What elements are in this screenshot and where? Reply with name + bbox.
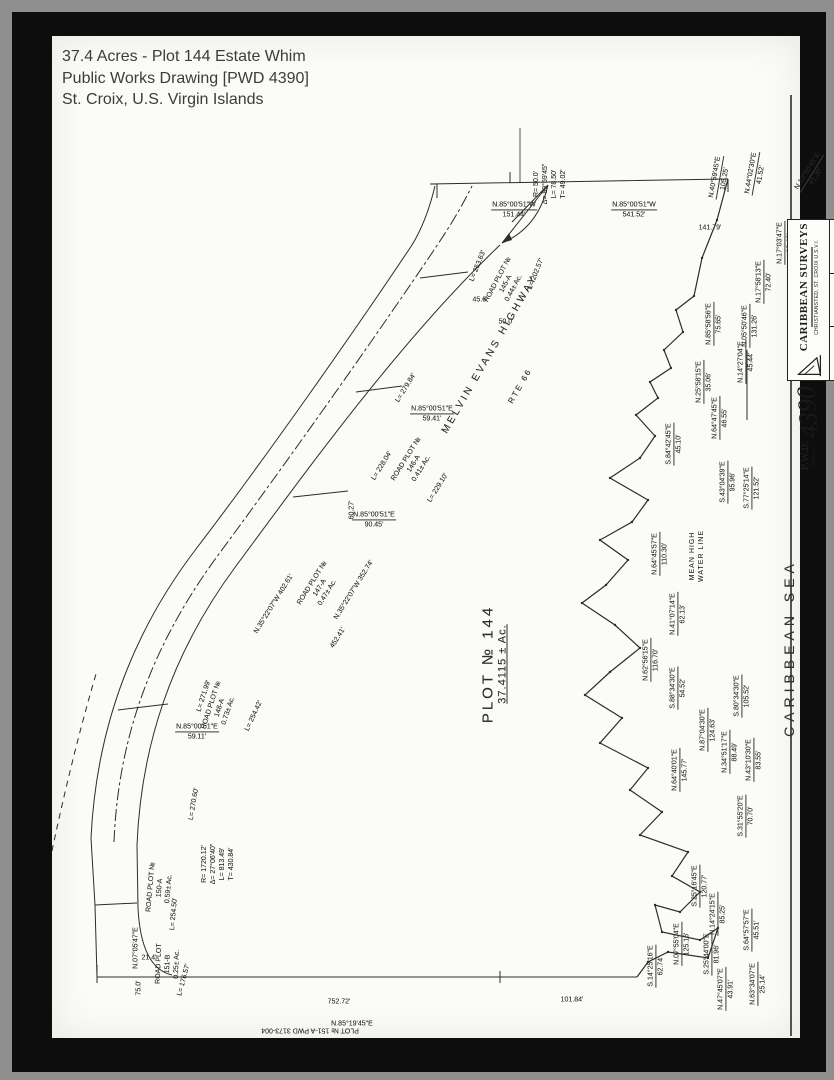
survey-label-line: 83.55' <box>755 750 764 771</box>
survey-label-line: S.25°16'45"E <box>690 864 700 907</box>
survey-label-line: 145.77' <box>681 758 690 783</box>
road-crossing-ties <box>118 272 468 710</box>
survey-label: N.85°00'51"W541.52' <box>611 200 657 219</box>
survey-label-line: N.34°51'17"E <box>720 730 730 774</box>
survey-label: S.84°42'45"E45.10' <box>664 422 683 465</box>
survey-label-line: 59.41' <box>422 415 443 424</box>
field-cell <box>830 220 834 273</box>
survey-label: N.14°27'04"E45.44' <box>736 340 755 384</box>
handwriting-scribble <box>830 220 834 273</box>
firm-subtitle-illegible <box>811 247 813 327</box>
survey-label: PLOT № 151-A PWD 3173-004 <box>260 1025 360 1034</box>
title-block-rotated: CARIBBEAN SURVEYS CHRISTIANSTED, ST. CRO… <box>787 219 834 381</box>
road-inner-edge <box>137 245 500 845</box>
handwriting-scribble <box>830 274 834 327</box>
fillet-arrowhead <box>502 233 512 243</box>
survey-label-line: S.64°57'57"E <box>742 908 752 951</box>
survey-label: 75.0' <box>134 980 143 997</box>
survey-label: S.64°57'57"E45.51' <box>742 908 761 951</box>
survey-label: 101.84' <box>560 995 585 1004</box>
scanned-survey-page: 37.4 Acres - Plot 144 Estate Whim Public… <box>0 0 834 1080</box>
survey-label-line: 62.74' <box>657 956 666 977</box>
survey-label: R= 1720.12'Δ= 27°06'40"L= 813.49'T= 430.… <box>200 843 236 886</box>
survey-label: N.62°56'15"E116.70' <box>641 638 660 682</box>
survey-label-line: N.62°56'15"E <box>641 638 651 682</box>
survey-label-line: 70.70' <box>747 806 756 827</box>
survey-label-line: N.63°34'07"E <box>748 962 758 1006</box>
survey-label-line: 121.52' <box>753 476 762 501</box>
survey-label-line: N.25°58'15"E <box>694 360 704 404</box>
survey-label-line: MEAN HIGH <box>688 531 697 582</box>
survey-label: S.88°34'30"E54.52' <box>668 666 687 709</box>
survey-label-line: 141.79' <box>698 223 723 232</box>
west-boundary-line <box>91 838 137 977</box>
survey-label-line: 54.52' <box>679 678 688 699</box>
survey-label-line: 60.27' <box>347 500 356 521</box>
field-cell <box>830 326 834 380</box>
survey-label-line: PLOT № 151-A PWD 3173-004 <box>260 1025 360 1034</box>
survey-label-line: Δ= 89°59'45" <box>541 163 550 206</box>
survey-label-line: S.43°04'39"E <box>718 460 728 503</box>
survey-label-line: T= 430.84' <box>227 846 236 881</box>
survey-label: S.14°25'16"E62.74' <box>646 944 665 987</box>
survey-label: R= 50.0'Δ= 89°59'45"L= 78.50'T= 49.02' <box>532 163 568 206</box>
survey-label-line: N.64°40'01"E <box>670 748 680 792</box>
survey-label-line: N.64°45'57"E <box>650 532 660 576</box>
survey-label-line: T= 49.02' <box>559 168 568 199</box>
survey-label: S.31°55'20"E70.70' <box>736 794 755 837</box>
pwd-number-rotated: P.W.D. DWG. NO. 4390 <box>784 398 832 470</box>
survey-label: MEAN HIGHWATER LINE <box>688 529 706 583</box>
survey-label: S.80°34'30"E105.52' <box>732 674 751 717</box>
survey-label-line: 541.52' <box>622 211 647 220</box>
field-cell <box>830 273 834 327</box>
survey-label: N.17°58'13"E72.40' <box>754 260 773 304</box>
survey-label-line: 35.06' <box>705 372 714 393</box>
survey-label-line: N.43°10'30"E <box>744 738 754 782</box>
survey-label-line: N.85°00'51"W <box>491 200 537 210</box>
title-block-fields <box>829 220 834 380</box>
survey-label-line: 90.45' <box>364 521 385 530</box>
north-boundary-line <box>430 172 728 198</box>
caribbean-sea-label: CARIBBEAN SEA <box>781 559 797 737</box>
survey-label: N.43°10'30"E83.55' <box>744 738 763 782</box>
dashed-road-arc <box>52 674 96 1002</box>
survey-label-line: 105.52' <box>743 684 752 709</box>
survey-label-line: L= 813.49' <box>218 847 227 882</box>
survey-label: N.41°07'14"E62.13' <box>668 592 687 636</box>
survey-label: N.07°55'04"E125.16' <box>672 922 691 966</box>
survey-label-line: N.85°58'56"E <box>704 302 714 346</box>
survey-label: ROAD PLOT151-B0.25± Ac. <box>154 942 183 985</box>
survey-label: 60.27' <box>347 500 356 521</box>
survey-label-line: S.14°25'16"E <box>646 944 656 987</box>
survey-label-line: S.88°34'30"E <box>668 666 678 709</box>
survey-label-line: 85.25' <box>719 904 728 925</box>
survey-label-line: N.41°07'14"E <box>668 592 678 636</box>
plot-name-label: PLOT № 144 37.4115 ± Ac. <box>480 605 509 723</box>
survey-label-line: 124.63' <box>709 718 718 743</box>
survey-label-line: S.31°55'20"E <box>736 794 746 837</box>
title-block-text: CARIBBEAN SURVEYS CHRISTIANSTED, ST. CRO… <box>798 223 820 351</box>
survey-label-line: 45.51' <box>753 920 762 941</box>
survey-label: N.14°24'15"E85.25' <box>708 892 727 936</box>
survey-label-line: WATER LINE <box>697 529 706 583</box>
survey-label-line: N.07°55'04"E <box>672 922 682 966</box>
survey-label-line: S.25°44'00"E <box>702 932 712 975</box>
survey-label: 21.4' <box>141 953 158 962</box>
survey-label: N.85°00'51"E90.45' <box>352 510 396 529</box>
survey-label-line: 72.40' <box>765 272 774 293</box>
survey-label-line: 46.55' <box>721 408 730 429</box>
pwd-prefix: P.W.D. <box>800 441 811 470</box>
survey-label: S.25°16'45"E120.77' <box>690 864 709 907</box>
plot-area: 37.4115 ± Ac. <box>497 605 509 723</box>
survey-label-line: 25.14' <box>759 974 768 995</box>
survey-label-line: 125.16' <box>683 932 692 957</box>
survey-label-line: N.17°03'47"E <box>775 221 785 265</box>
survey-label-line: 81.96' <box>713 944 722 965</box>
survey-label-line: Δ= 27°06'40" <box>209 843 218 886</box>
drawing-sheet: 37.4 Acres - Plot 144 Estate Whim Public… <box>52 36 800 1038</box>
survey-label: N.47°45'07"E43.91' <box>716 967 735 1011</box>
dwg-no-label: DWG. NO. <box>811 445 816 467</box>
survey-label: N.63°34'07"E25.14' <box>748 962 767 1006</box>
survey-label-line: N.85°00'51"W <box>611 200 657 210</box>
survey-label-line: N.85°00'51"E <box>352 510 396 520</box>
sail-pennant-logo-icon <box>794 354 824 377</box>
survey-label-line: R= 50.0' <box>532 170 541 198</box>
survey-label-line: 43.91' <box>727 979 736 1000</box>
survey-label-line: 151.44' <box>502 211 527 220</box>
survey-label-line: N.47°45'07"E <box>716 967 726 1011</box>
survey-label-line: 75.65' <box>715 314 724 335</box>
survey-label: N.64°40'01"E145.77' <box>670 748 689 792</box>
shoreline-boundary <box>582 179 728 977</box>
handwriting-scribble <box>830 327 834 380</box>
surveyor-firm-name: CARIBBEAN SURVEYS <box>798 223 810 351</box>
survey-label-line: 101.84' <box>560 995 585 1004</box>
survey-label-line: 75.0' <box>134 980 143 997</box>
survey-label-line: S.80°34'30"E <box>732 674 742 717</box>
survey-label: 752.72' <box>327 997 352 1006</box>
survey-label: N.07°05'47"E <box>131 926 140 970</box>
survey-label-line: N.07°05'47"E <box>131 926 140 970</box>
survey-label-line: N.64°47'45"E <box>710 396 720 440</box>
survey-label-line: S.77°25'14"E <box>742 466 752 509</box>
pwd-number-block: P.W.D. DWG. NO. 4390 <box>796 386 834 458</box>
highway-centerline <box>114 186 472 842</box>
survey-label-line: S.84°42'45"E <box>664 422 674 465</box>
title-block-main: CARIBBEAN SURVEYS CHRISTIANSTED, ST. CRO… <box>788 220 829 380</box>
survey-label: N.64°47'45"E46.55' <box>710 396 729 440</box>
survey-label: N.85°00'51"W151.44' <box>491 200 537 219</box>
survey-label: S.43°04'39"E95.96' <box>718 460 737 503</box>
survey-label-line: 62.13' <box>679 604 688 625</box>
survey-label-line: 88.49' <box>731 742 740 763</box>
pwd-label: P.W.D. DWG. NO. <box>800 441 816 470</box>
survey-label-line: 131.26' <box>751 314 760 339</box>
survey-label: ROAD PLOT №150-A0.59± Ac. <box>144 861 176 915</box>
survey-label-line: R= 1720.12' <box>200 844 209 884</box>
survey-label-line: N.87°04'30"E <box>698 708 708 752</box>
survey-label: S.77°25'14"E121.52' <box>742 466 761 509</box>
survey-label-line: 752.72' <box>327 997 352 1006</box>
survey-label-line: 21.4' <box>141 953 158 962</box>
survey-label: N.85°58'56"E75.65' <box>704 302 723 346</box>
survey-label: N.87°04'30"E124.63' <box>698 708 717 752</box>
plot-number: PLOT № 144 <box>480 605 497 723</box>
survey-label-line: L= 78.50' <box>550 169 559 200</box>
survey-label-line: 116.70' <box>652 648 661 672</box>
survey-label-line: 45.44' <box>747 352 756 373</box>
drawing-number: 4390 <box>791 385 825 439</box>
survey-label: N.34°51'17"E88.49' <box>720 730 739 774</box>
survey-label-line: N.14°27'04"E <box>736 340 746 384</box>
survey-label-line: 59.11' <box>187 733 207 742</box>
surveyor-address: CHRISTIANSTED, ST. CROIX U.S.V.I. <box>814 239 820 335</box>
survey-label-line: N.17°58'13"E <box>754 260 764 304</box>
survey-label-line: 110.30' <box>661 542 670 566</box>
survey-label-line: N.85°00'51"E <box>410 404 454 414</box>
survey-label-line: N.14°24'15"E <box>708 892 718 936</box>
survey-label: 141.79' <box>698 223 723 232</box>
survey-label-line: 95.96' <box>729 472 738 493</box>
title-block: CARIBBEAN SURVEYS CHRISTIANSTED, ST. CRO… <box>787 221 834 381</box>
survey-label-line: 45.10' <box>675 434 684 455</box>
survey-label-line: 0.25± Ac. <box>172 949 182 980</box>
survey-label: N.64°45'57"E110.30' <box>650 532 669 576</box>
